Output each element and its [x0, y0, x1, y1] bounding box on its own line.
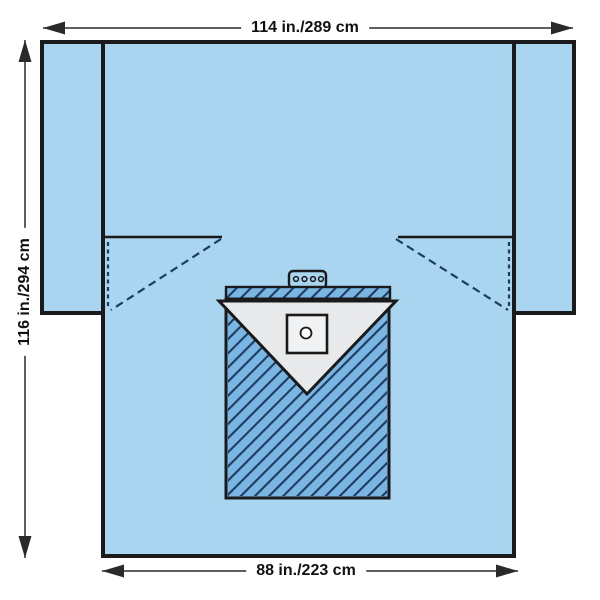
tab-hole-icon [302, 277, 307, 282]
dim-label-bottom-width: 88 in./223 cm [246, 561, 366, 581]
arrow-right-icon [496, 565, 518, 578]
drape-diagram [0, 0, 600, 600]
arrow-up-icon [19, 40, 32, 62]
tab-hole-icon [294, 277, 299, 282]
fenestration-port [301, 328, 312, 339]
tab-hole-icon [319, 277, 324, 282]
arrow-left-icon [43, 22, 65, 35]
dim-label-side-height: 116 in./294 cm [15, 228, 35, 356]
tab-hole-icon [311, 277, 316, 282]
arrow-down-icon [19, 536, 32, 558]
arrow-left-icon [102, 565, 124, 578]
diagram-canvas: 114 in./289 cm 116 in./294 cm 88 in./223… [0, 0, 600, 600]
arrow-right-icon [551, 22, 573, 35]
dim-label-top-width: 114 in./289 cm [241, 18, 369, 38]
